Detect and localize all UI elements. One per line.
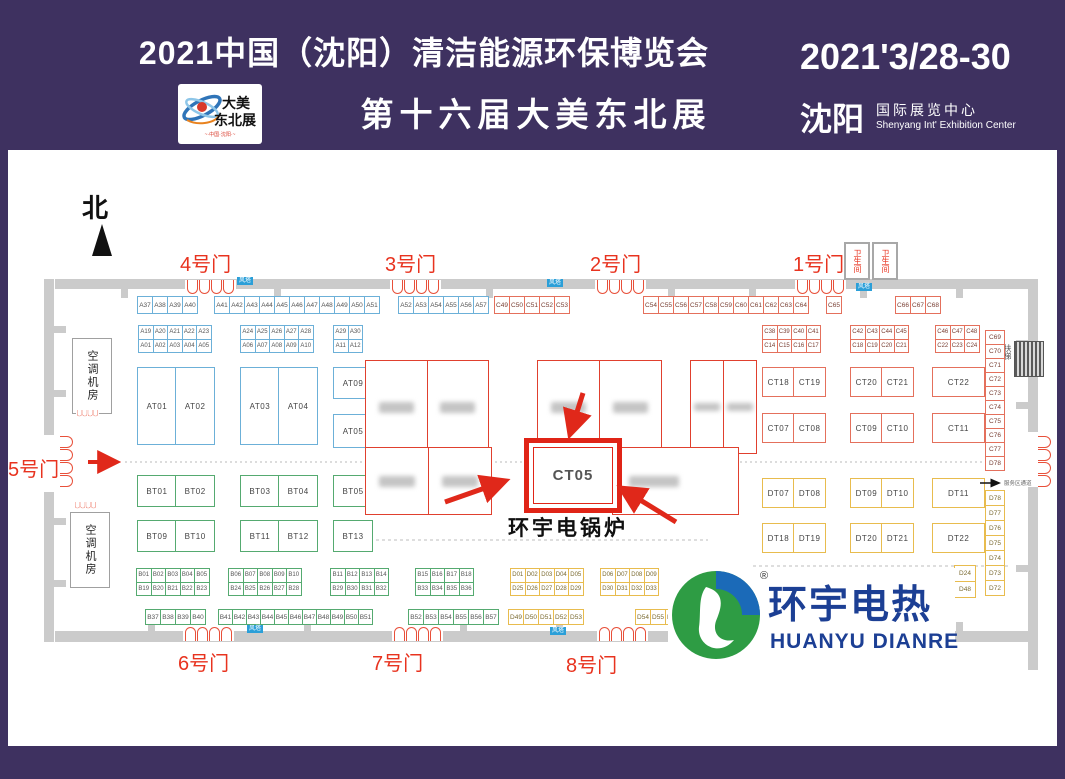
booth-cell: D52 bbox=[553, 609, 569, 625]
booth-cell: B33 bbox=[415, 582, 431, 597]
booth-cell: B50 bbox=[344, 609, 359, 625]
gate-2-label: 2号门 bbox=[590, 248, 641, 277]
booth-cell: A49 bbox=[334, 296, 350, 314]
registered-mark: ® bbox=[760, 570, 768, 582]
gate-7-label: 7号门 bbox=[372, 647, 423, 676]
booth-cell: B35 bbox=[444, 582, 460, 597]
blurred-booth-pair bbox=[365, 360, 489, 454]
booth-cell: D73 bbox=[985, 565, 1005, 581]
booth-cell: C62 bbox=[763, 296, 779, 314]
gate-5-door-icon bbox=[60, 434, 73, 489]
booth-group-a37: A37A38A39A40 bbox=[137, 296, 198, 314]
booth-cell: A48 bbox=[319, 296, 335, 314]
booth-large: DT08 bbox=[793, 478, 826, 508]
booth-large: DT21 bbox=[881, 523, 914, 553]
booth-cell: B38 bbox=[160, 609, 176, 625]
expo-subtitle: 第十六届大美东北展 bbox=[266, 88, 806, 136]
booth-cell: C54 bbox=[643, 296, 659, 314]
booth-cell: B39 bbox=[175, 609, 191, 625]
booth-pair-dt07: DT07DT08 bbox=[762, 478, 826, 508]
booth-grid-a29: A29A30 A11A12 bbox=[333, 325, 363, 353]
booth-pair-ct20: CT20CT21 bbox=[850, 367, 914, 397]
wall-stub bbox=[1016, 402, 1028, 409]
booth-cell: C48 bbox=[964, 325, 980, 340]
booth-pair-bt01: BT01BT02 bbox=[137, 475, 215, 507]
booth-col-d78: D78D77D76D75D74D73D72 bbox=[985, 490, 1005, 596]
booth-bt13: BT13 bbox=[333, 520, 373, 552]
booth-cell: C70 bbox=[985, 344, 1005, 359]
booth-cell: D06 bbox=[600, 568, 616, 583]
booth-pair-bt09: BT09BT10 bbox=[137, 520, 215, 552]
booth-cell: D01 bbox=[510, 568, 526, 583]
booth-cell: B21 bbox=[165, 582, 181, 597]
banner: 2021中国（沈阳）清洁能源环保博览会 大美 东北展 ~·中国·沈阳·~ 第十六… bbox=[8, 8, 1057, 150]
venue-name-cn: 国际展览中心 bbox=[876, 100, 978, 120]
booth-cell: A56 bbox=[458, 296, 474, 314]
booth-cell: B36 bbox=[459, 582, 475, 597]
booth-cell: D76 bbox=[985, 520, 1005, 536]
ac-room-door-icon bbox=[74, 502, 97, 508]
booth-cell: A19 bbox=[138, 325, 154, 340]
huanyu-logo-cn: 环宇电热 bbox=[768, 574, 932, 630]
gate-6-door-icon bbox=[183, 627, 234, 641]
booth-pair-at01: AT01AT02 bbox=[137, 367, 215, 445]
venue-city: 沈阳 bbox=[800, 94, 864, 140]
booth-large: CT21 bbox=[881, 367, 914, 397]
booth-large: BT04 bbox=[278, 475, 318, 507]
gate-8-label: 8号门 bbox=[566, 649, 617, 678]
booth-cell: C50 bbox=[509, 296, 525, 314]
booth-cell: D77 bbox=[985, 505, 1005, 521]
wall-stub bbox=[54, 326, 66, 333]
booth-grid-c46: C46C47C48 C22C23C24 bbox=[935, 325, 980, 353]
booth-cell: B32 bbox=[374, 582, 390, 597]
booth-cell: B03 bbox=[165, 568, 181, 583]
booth-pair-bt11: BT11BT12 bbox=[240, 520, 318, 552]
expo-title: 2021中国（沈阳）清洁能源环保博览会 bbox=[38, 28, 810, 74]
wall-stub bbox=[121, 289, 128, 298]
booth-row-b52: B52B53B54B55B56B57 bbox=[408, 609, 499, 625]
booth-grid-a19: A19A20A21A22A23 A01A02A03A04A05 bbox=[138, 325, 212, 353]
gate-2-door-icon bbox=[595, 280, 646, 294]
booth-cell: A02 bbox=[153, 339, 169, 354]
booth-large: BT01 bbox=[137, 475, 177, 507]
booth-cell: C64 bbox=[793, 296, 809, 314]
booth-cell: B24 bbox=[228, 582, 244, 597]
booth-cell: B14 bbox=[374, 568, 390, 583]
wall-stub bbox=[54, 390, 66, 397]
booth-cell: B12 bbox=[345, 568, 361, 583]
booth-cell: B34 bbox=[430, 582, 446, 597]
booth-grid-d01: D01D02D03D04D05 D25D26D27D28D29 bbox=[510, 568, 584, 596]
booth-dt11: DT11 bbox=[932, 478, 985, 508]
booth-pair-ct09: CT09CT10 bbox=[850, 413, 914, 443]
booth-cell: C56 bbox=[673, 296, 689, 314]
expo-date: 2021'3/28-30 bbox=[800, 36, 1011, 78]
booth-cell: B31 bbox=[359, 582, 375, 597]
booth-cell: D05 bbox=[568, 568, 584, 583]
booth-cell: C21 bbox=[894, 339, 910, 354]
booth-cell: B43 bbox=[246, 609, 261, 625]
booth-cell: C40 bbox=[791, 325, 807, 340]
booth-cell: D33 bbox=[644, 582, 660, 597]
booth-group-c54: C54C55C56C57C58C59C60C61C62C63C64 bbox=[643, 296, 809, 314]
booth-cell: A24 bbox=[240, 325, 256, 340]
booth-cell: B19 bbox=[136, 582, 152, 597]
booth-cell: B23 bbox=[194, 582, 210, 597]
booth-large: BT11 bbox=[240, 520, 280, 552]
booth-cell: A09 bbox=[284, 339, 300, 354]
booth-cell: A12 bbox=[348, 339, 364, 354]
booth-large: DT07 bbox=[762, 478, 795, 508]
north-arrow-icon bbox=[92, 224, 112, 256]
floor-plan: 北 4号门 3号门 2号门 1号门 5号门 6号门 7号门 8号门 卫生间 卫生… bbox=[8, 150, 1057, 746]
booth-cell: D03 bbox=[539, 568, 555, 583]
booth-cell: C61 bbox=[748, 296, 764, 314]
booth-pair-dt09: DT09DT10 bbox=[850, 478, 914, 508]
wind-tower-tag: 风塔 bbox=[547, 279, 563, 287]
booth-cell: C24 bbox=[964, 339, 980, 354]
gate-5-label: 5号门 bbox=[8, 453, 59, 482]
booth-row-b37: B37B38B39B40 bbox=[145, 609, 206, 625]
booth-grid-b06: B06B07B08B09B10 B24B25B26B27B28 bbox=[228, 568, 302, 596]
booth-cell: D48 bbox=[954, 581, 976, 598]
booth-cell: C17 bbox=[806, 339, 822, 354]
escalator-icon bbox=[1014, 341, 1044, 377]
booth-large: AT02 bbox=[175, 367, 215, 445]
booth-cell: A07 bbox=[255, 339, 271, 354]
booth-large: CT11 bbox=[932, 413, 985, 443]
booth-pair-ct07: CT07CT08 bbox=[762, 413, 826, 443]
booth-cell: A20 bbox=[153, 325, 169, 340]
booth-group-c66: C66C67C68 bbox=[895, 296, 941, 314]
booth-cell: A01 bbox=[138, 339, 154, 354]
booth-cell: C41 bbox=[806, 325, 822, 340]
booth-cell: B30 bbox=[345, 582, 361, 597]
booth-cell: D53 bbox=[568, 609, 584, 625]
booth-cell: C68 bbox=[925, 296, 941, 314]
booth-cell: C44 bbox=[879, 325, 895, 340]
north-label: 北 bbox=[82, 188, 108, 225]
booth-cell: B57 bbox=[483, 609, 499, 625]
booth-cell: B46 bbox=[288, 609, 303, 625]
blurred-text bbox=[379, 402, 414, 413]
booth-pair-dt20: DT20DT21 bbox=[850, 523, 914, 553]
ac-room-door-icon bbox=[76, 410, 99, 416]
booth-cell: A05 bbox=[196, 339, 212, 354]
booth-large: BT12 bbox=[278, 520, 318, 552]
booth-cell: A54 bbox=[428, 296, 444, 314]
booth-cell: A40 bbox=[182, 296, 198, 314]
booth-cell: A25 bbox=[255, 325, 271, 340]
booth-cell: D51 bbox=[538, 609, 554, 625]
booth-cell: C15 bbox=[777, 339, 793, 354]
booth-group-c65: C65 bbox=[826, 296, 842, 314]
booth-large: CT20 bbox=[850, 367, 883, 397]
booth-cell: A43 bbox=[244, 296, 260, 314]
booth-cell: B20 bbox=[151, 582, 167, 597]
booth-cell: C65 bbox=[826, 296, 842, 314]
gate-6-label: 6号门 bbox=[178, 647, 229, 676]
booth-cell: C45 bbox=[894, 325, 910, 340]
booth-cell: D24 bbox=[954, 565, 976, 582]
booth-cell: C51 bbox=[524, 296, 540, 314]
booth-cell: C22 bbox=[935, 339, 951, 354]
booth-cell: B52 bbox=[408, 609, 424, 625]
booth-cell: D78 bbox=[985, 490, 1005, 506]
booth-cell: D78 bbox=[985, 456, 1005, 471]
booth-cell: C60 bbox=[733, 296, 749, 314]
booth-cell: A53 bbox=[413, 296, 429, 314]
booth-cell: C76 bbox=[985, 428, 1005, 443]
booth-cell: B26 bbox=[257, 582, 273, 597]
booth-cell: C53 bbox=[554, 296, 570, 314]
booth-cell: A26 bbox=[269, 325, 285, 340]
booth-large: CT22 bbox=[932, 367, 985, 397]
booth-cell: C47 bbox=[950, 325, 966, 340]
venue-name-en: Shenyang Int' Exhibition Center bbox=[876, 120, 1016, 131]
booth-cell: B55 bbox=[453, 609, 469, 625]
booth-large: BT03 bbox=[240, 475, 280, 507]
booth-cell: C66 bbox=[895, 296, 911, 314]
booth-cell: D08 bbox=[629, 568, 645, 583]
gate-4-door-icon bbox=[185, 280, 236, 294]
booth-cell: D31 bbox=[615, 582, 631, 597]
booth-large: AT04 bbox=[278, 367, 318, 445]
booth-cell: C14 bbox=[762, 339, 778, 354]
booth-row-d49: D49D50D51D52D53 bbox=[508, 609, 584, 625]
wind-tower-tag: 风塔 bbox=[550, 627, 566, 635]
wind-tower-tag: 风塔 bbox=[856, 283, 872, 291]
booth-pair-at03: AT03AT04 bbox=[240, 367, 318, 445]
booth-cell: B42 bbox=[232, 609, 247, 625]
booth-cell: D25 bbox=[510, 582, 526, 597]
booth-large: DT19 bbox=[793, 523, 826, 553]
booth-cell: C57 bbox=[688, 296, 704, 314]
booth-grid-c42: C42C43C44C45 C18C19C20C21 bbox=[850, 325, 909, 353]
booth-cell: C18 bbox=[850, 339, 866, 354]
wind-tower-tag: 风塔 bbox=[237, 277, 253, 285]
booth-cell: C71 bbox=[985, 358, 1005, 373]
restroom-box: 卫生间 bbox=[844, 242, 870, 280]
booth-cell: C39 bbox=[777, 325, 793, 340]
booth-cell: C20 bbox=[879, 339, 895, 354]
booth-cell: B44 bbox=[260, 609, 275, 625]
booth-cell: B04 bbox=[180, 568, 196, 583]
ac-room-box: 空调机房 bbox=[70, 512, 110, 588]
booth-cell: B22 bbox=[180, 582, 196, 597]
damei-logo-card: 大美 东北展 ~·中国·沈阳·~ bbox=[178, 84, 262, 144]
booth-cell: A42 bbox=[229, 296, 245, 314]
booth-cell: A28 bbox=[298, 325, 314, 340]
booth-cell: B16 bbox=[430, 568, 446, 583]
booth-cell: C38 bbox=[762, 325, 778, 340]
highlight-booth-ct05: CT05 bbox=[524, 438, 622, 513]
booth-cell: A03 bbox=[167, 339, 183, 354]
booth-cell: B51 bbox=[358, 609, 373, 625]
booth-cell: A52 bbox=[398, 296, 414, 314]
booth-cell: C55 bbox=[658, 296, 674, 314]
booth-large: CT10 bbox=[881, 413, 914, 443]
booth-cell: D72 bbox=[985, 580, 1005, 596]
gate-1-door-icon bbox=[795, 280, 846, 294]
booth-large: DT20 bbox=[850, 523, 883, 553]
blurred-booth-pair bbox=[690, 360, 757, 454]
booth-cell: A29 bbox=[333, 325, 349, 340]
booth-grid-d06: D06D07D08D09 D30D31D32D33 bbox=[600, 568, 659, 596]
booth-large: AT03 bbox=[240, 367, 280, 445]
booth-group-c49: C49C50C51C52C53 bbox=[494, 296, 570, 314]
booth-large: DT18 bbox=[762, 523, 795, 553]
booth-cell: D28 bbox=[554, 582, 570, 597]
booth-cell: C46 bbox=[935, 325, 951, 340]
booth-cell: B28 bbox=[286, 582, 302, 597]
blurred-booth bbox=[612, 447, 739, 515]
booth-grid-b11: B11B12B13B14 B29B30B31B32 bbox=[330, 568, 389, 596]
booth-cell: C19 bbox=[865, 339, 881, 354]
booth-cell: B29 bbox=[330, 582, 346, 597]
booth-cell: A37 bbox=[137, 296, 153, 314]
restroom-box: 卫生间 bbox=[872, 242, 898, 280]
booth-cell: B45 bbox=[274, 609, 289, 625]
booth-cell: B25 bbox=[243, 582, 259, 597]
booth-cell: C67 bbox=[910, 296, 926, 314]
booth-cell: D26 bbox=[525, 582, 541, 597]
booth-cell: C23 bbox=[950, 339, 966, 354]
booth-cell: A57 bbox=[473, 296, 489, 314]
booth-ct11: CT11 bbox=[932, 413, 985, 443]
booth-grid-a24: A24A25A26A27A28 A06A07A08A09A10 bbox=[240, 325, 314, 353]
booth-large: CT18 bbox=[762, 367, 795, 397]
gate-right-door-icon bbox=[1038, 434, 1051, 489]
booth-cell: C42 bbox=[850, 325, 866, 340]
booth-dt22: DT22 bbox=[932, 523, 985, 553]
booth-cell: D07 bbox=[615, 568, 631, 583]
booth-cell: B53 bbox=[423, 609, 439, 625]
booth-cell: D27 bbox=[539, 582, 555, 597]
booth-cell: C77 bbox=[985, 442, 1005, 457]
huanyu-logo-en: HUANYU DIANRE bbox=[770, 630, 959, 654]
booth-cell: B37 bbox=[145, 609, 161, 625]
booth-col-c69: C69C70C71C72C73C74C75C76C77D78 bbox=[985, 330, 1005, 471]
huanyu-logo-icon bbox=[670, 569, 762, 661]
booth-cell: C43 bbox=[865, 325, 881, 340]
booth-cell: A39 bbox=[167, 296, 183, 314]
booth-row-b41: B41B42B43B44B45B46B47B48B49B50B51 bbox=[218, 609, 373, 625]
poster: 2021中国（沈阳）清洁能源环保博览会 大美 东北展 ~·中国·沈阳·~ 第十六… bbox=[0, 0, 1065, 779]
booth-cell: B17 bbox=[444, 568, 460, 583]
booth-cell: B11 bbox=[330, 568, 346, 583]
ac-room-box: 空调机房 bbox=[72, 338, 112, 414]
booth-cell: B01 bbox=[136, 568, 152, 583]
booth-cell: A27 bbox=[284, 325, 300, 340]
wall-left-lower bbox=[44, 492, 54, 642]
booth-grid-c38: C38C39C40C41 C14C15C16C17 bbox=[762, 325, 821, 353]
booth-cell: A21 bbox=[167, 325, 183, 340]
booth-cell: B27 bbox=[272, 582, 288, 597]
booth-ct22: CT22 bbox=[932, 367, 985, 397]
booth-cell: B05 bbox=[194, 568, 210, 583]
booth-large: BT02 bbox=[175, 475, 215, 507]
wall-stub bbox=[956, 289, 963, 298]
booth-cell: B06 bbox=[228, 568, 244, 583]
wall-stub bbox=[1016, 565, 1028, 572]
wall-left-upper bbox=[44, 279, 54, 435]
booth-cell: A41 bbox=[214, 296, 230, 314]
booth-cell: A46 bbox=[289, 296, 305, 314]
booth-cell: B13 bbox=[359, 568, 375, 583]
booth-cell: C16 bbox=[791, 339, 807, 354]
wall-right-lower bbox=[1028, 487, 1038, 670]
booth-large: DT11 bbox=[932, 478, 985, 508]
damei-logo-subtitle: ~·中国·沈阳·~ bbox=[178, 131, 262, 138]
service-corridor-label: 服务区通道 bbox=[1004, 479, 1032, 487]
huanyu-logo: ® 环宇电热 HUANYU DIANRE bbox=[668, 568, 955, 690]
booth-cell: A45 bbox=[274, 296, 290, 314]
booth-cell: C52 bbox=[539, 296, 555, 314]
booth-cell: B54 bbox=[438, 609, 454, 625]
booth-cell: A11 bbox=[333, 339, 349, 354]
booth-cell: B40 bbox=[190, 609, 206, 625]
booth-cell: C72 bbox=[985, 372, 1005, 387]
booth-cell: A30 bbox=[348, 325, 364, 340]
booth-col-d24: D24D48 bbox=[954, 565, 976, 598]
booth-large: DT09 bbox=[850, 478, 883, 508]
booth-cell: B07 bbox=[243, 568, 259, 583]
booth-cell: A50 bbox=[349, 296, 365, 314]
booth-cell: D04 bbox=[554, 568, 570, 583]
gate-3-label: 3号门 bbox=[385, 248, 436, 277]
damei-logo-text2: 东北展 bbox=[214, 110, 256, 130]
booth-cell: B41 bbox=[218, 609, 233, 625]
booth-cell: A47 bbox=[304, 296, 320, 314]
booth-cell: C59 bbox=[718, 296, 734, 314]
booth-grid-b01: B01B02B03B04B05 B19B20B21B22B23 bbox=[136, 568, 210, 596]
booth-cell: C49 bbox=[494, 296, 510, 314]
booth-large: CT19 bbox=[793, 367, 826, 397]
booth-cell: D50 bbox=[523, 609, 539, 625]
booth-cell: D32 bbox=[629, 582, 645, 597]
wall-stub bbox=[54, 580, 66, 587]
booth-cell: A22 bbox=[182, 325, 198, 340]
booth-cell: D30 bbox=[600, 582, 616, 597]
booth-cell: B47 bbox=[302, 609, 317, 625]
booth-cell: D02 bbox=[525, 568, 541, 583]
booth-cell: C75 bbox=[985, 414, 1005, 429]
booth-cell: B10 bbox=[286, 568, 302, 583]
booth-cell: D49 bbox=[508, 609, 524, 625]
booth-cell: A55 bbox=[443, 296, 459, 314]
booth-pair-dt18: DT18DT19 bbox=[762, 523, 826, 553]
booth-large: AT01 bbox=[137, 367, 177, 445]
booth-cell: C58 bbox=[703, 296, 719, 314]
booth-group-a41: A41A42A43A44A45A46A47A48A49A50A51 bbox=[214, 296, 380, 314]
booth-cell: B08 bbox=[257, 568, 273, 583]
booth-cell: D09 bbox=[644, 568, 660, 583]
booth-cell: B56 bbox=[468, 609, 484, 625]
booth-cell: A51 bbox=[364, 296, 380, 314]
booth-pair-bt03: BT03BT04 bbox=[240, 475, 318, 507]
booth-cell: B09 bbox=[272, 568, 288, 583]
booth-cell: A04 bbox=[182, 339, 198, 354]
booth-cell: B02 bbox=[151, 568, 167, 583]
booth-cell: A38 bbox=[152, 296, 168, 314]
booth-cell: B48 bbox=[316, 609, 331, 625]
booth-large: BT13 bbox=[333, 520, 373, 552]
booth-group-a52: A52A53A54A55A56A57 bbox=[398, 296, 489, 314]
wind-tower-tag: 风塔 bbox=[247, 625, 263, 633]
booth-cell: B15 bbox=[415, 568, 431, 583]
